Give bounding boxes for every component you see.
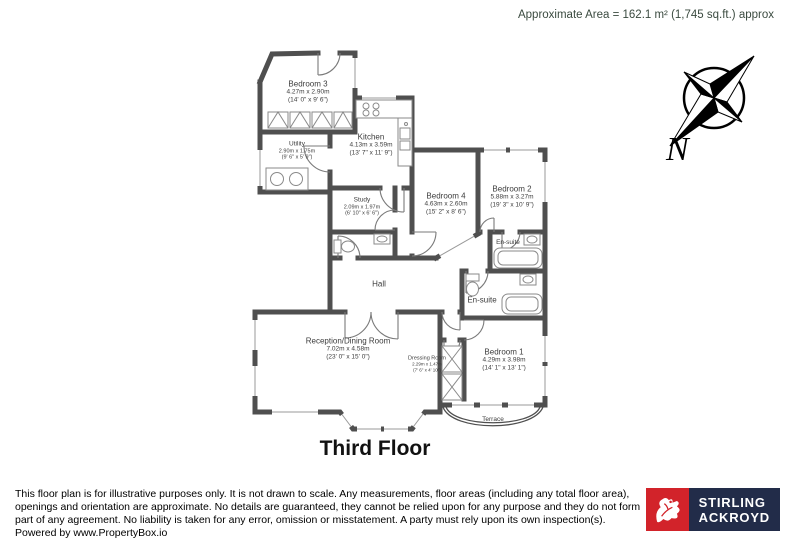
logo-line1: STIRLING (699, 495, 770, 510)
wardrobe-icon (268, 112, 352, 128)
room-label-kitchen: Kitchen 4.13m x 3.59m (13' 7" x 11' 9") (349, 133, 392, 158)
disclaimer-text: This floor plan is for illustrative purp… (15, 488, 655, 527)
logo-line2: ACKROYD (699, 510, 770, 525)
logo-griffin-icon (646, 488, 689, 531)
floor-title: Third Floor (250, 437, 500, 461)
room-label-terrace: Terrace (482, 416, 504, 424)
bath-icon (494, 248, 542, 268)
toilet-icon (466, 274, 479, 296)
utility-washer-icon (266, 168, 308, 190)
room-label-utility: Utility 2.90m x 1.75m (9' 6" x 5' 9") (279, 141, 315, 162)
sink-icon (520, 274, 536, 285)
floorplan-page: Approximate Area = 162.1 m² (1,745 sq.ft… (0, 0, 786, 550)
room-label-study: Study 2.09m x 1.97m (6' 10" x 6' 6") (344, 197, 380, 218)
sink-icon (374, 234, 390, 244)
powered-by-text: Powered by www.PropertyBox.io (15, 527, 655, 540)
room-label-bedroom4: Bedroom 4 4.63m x 2.60m (15' 2" x 8' 6") (425, 192, 468, 217)
toilet-icon (334, 240, 355, 253)
room-label-reception: Reception/Dining Room 7.02m x 4.58m (23'… (306, 337, 391, 362)
bath-icon (502, 294, 542, 314)
sink-icon (524, 234, 540, 245)
wardrobe-icon (442, 346, 462, 400)
room-label-bedroom1: Bedroom 1 4.29m x 3.98m (14' 1" x 13' 1"… (482, 348, 526, 373)
room-label-bedroom3: Bedroom 3 4.27m x 2.90m (14' 0" x 9' 6") (287, 80, 330, 105)
kitchen-sink-icon (398, 118, 412, 166)
room-label-ensuite-large: En-suite (467, 295, 496, 304)
room-label-bedroom2: Bedroom 2 5.88m x 3.27m (19' 3" x 10' 9"… (490, 185, 534, 210)
room-label-dressing: Dressing Room 2.29m x 1.47m (7' 6" x 4' … (408, 355, 446, 372)
stirling-ackroyd-logo: STIRLING ACKROYD (646, 488, 780, 531)
kitchen-hob-icon (356, 100, 412, 118)
logo-wordmark: STIRLING ACKROYD (689, 488, 780, 531)
floorplan-drawing (0, 0, 786, 550)
footer-disclaimer: This floor plan is for illustrative purp… (15, 488, 655, 540)
room-label-hall: Hall (372, 279, 386, 288)
room-label-ensuite-small: En-suite (496, 239, 520, 247)
